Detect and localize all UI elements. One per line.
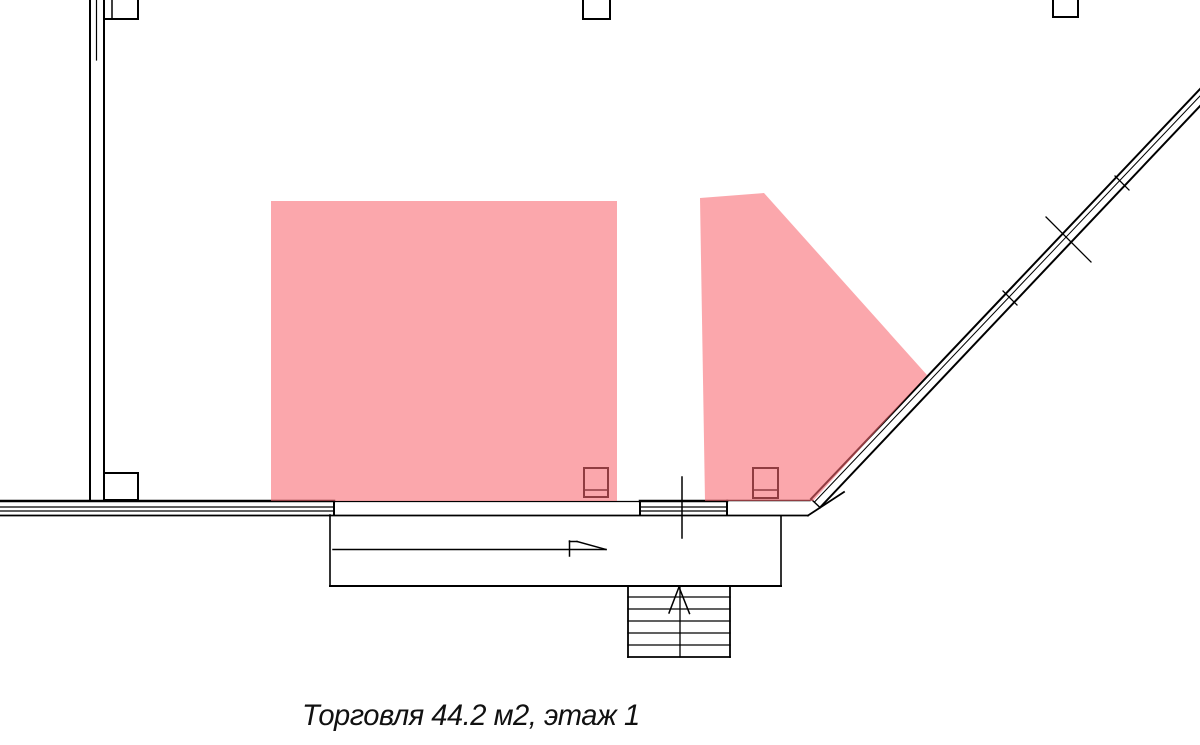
highlight-right-trade-area bbox=[700, 193, 927, 501]
diagonal-glazed-wall bbox=[811, 89, 1200, 508]
top-middle-column bbox=[583, 0, 610, 19]
diagonal-wall-glass-line bbox=[815, 96, 1200, 502]
diagonal-wall-outer-line bbox=[820, 106, 1200, 508]
top-left-column bbox=[104, 0, 138, 19]
stairs bbox=[628, 586, 730, 657]
entry-direction-arrow bbox=[333, 541, 606, 556]
area-caption: Торговля 44.2 м2, этаж 1 bbox=[302, 699, 640, 733]
floor-plan: Торговля 44.2 м2, этаж 1 bbox=[0, 0, 1200, 745]
top-right-column bbox=[1053, 0, 1078, 17]
left-wall-pilaster bbox=[104, 473, 138, 500]
floor-plan-drawing bbox=[0, 0, 1200, 745]
entry-direction-arrow-head bbox=[577, 542, 606, 550]
glazing-cross-mark bbox=[1046, 217, 1091, 262]
highlight-areas bbox=[271, 193, 927, 501]
highlight-left-trade-area bbox=[271, 201, 617, 501]
mullion-tick bbox=[1003, 291, 1017, 305]
